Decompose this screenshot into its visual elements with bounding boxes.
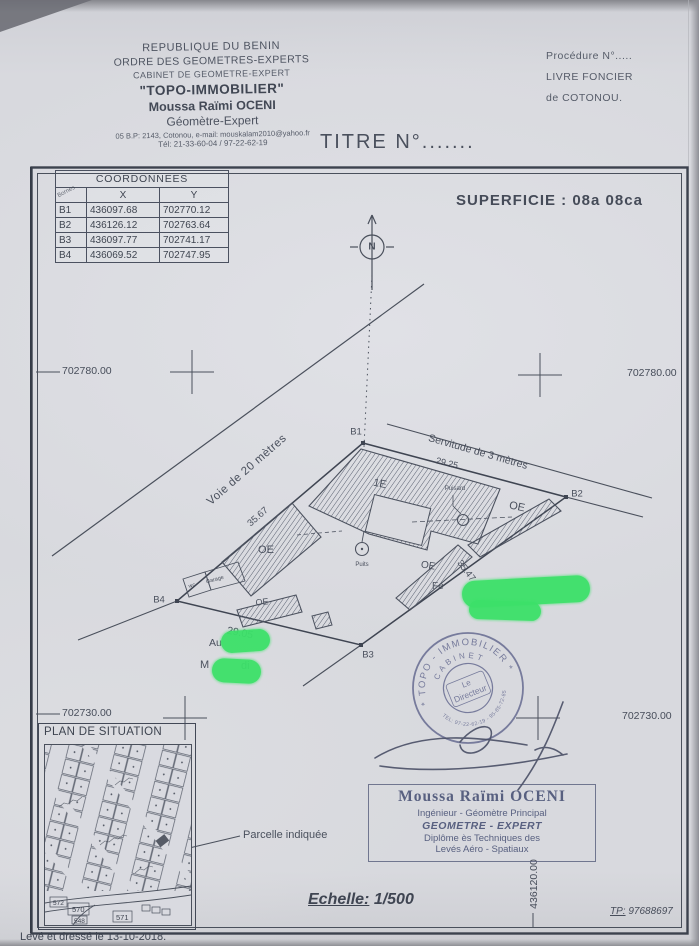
- north-arrow: [350, 215, 394, 290]
- letterhead: REPUBLIQUE DU BENIN ORDRE DES GEOMETRES-…: [61, 39, 363, 150]
- building-oe-small: [237, 595, 302, 627]
- boundary-extension-b3: [303, 645, 361, 686]
- situation-plan-title: PLAN DE SITUATION: [44, 726, 162, 738]
- situation-plan-map: 572 570 548 571: [44, 744, 192, 926]
- surveyor-title-2: GEOMETRE - EXPERT: [369, 820, 595, 832]
- block-number: 570: [72, 905, 85, 914]
- surveyor-diploma-1: Diplôme ès Techniques des: [369, 833, 595, 844]
- highlighter-redaction: [220, 628, 270, 653]
- road-edge-b4: [78, 601, 177, 640]
- scanned-survey-document: REPUBLIQUE DU BENIN ORDRE DES GEOMETRES-…: [0, 0, 699, 946]
- building-oe-mid: [396, 545, 472, 610]
- scan-corner-shadow: [0, 0, 92, 32]
- highlighter-redaction: [469, 600, 542, 622]
- boundary-extension-b2: [566, 497, 643, 517]
- building-oe-left: [222, 503, 321, 596]
- registry-city: de COTONOU.: [546, 92, 633, 104]
- gate-symbol: [312, 612, 332, 629]
- scale-label: Echelle:: [308, 891, 369, 908]
- scan-edge-top: [0, 0, 699, 12]
- round-stamp: * TOPO - IMMOBILIER * CABINET TEL: 97-22…: [396, 616, 539, 759]
- block-number: 572: [53, 900, 64, 907]
- block-number: 548: [74, 918, 85, 925]
- well-center-dot: [361, 548, 363, 550]
- document-title: TITRE N°.......: [320, 131, 475, 154]
- surveyor-diploma-2: Levés Aéro - Spatiaux: [369, 844, 595, 855]
- highlighter-redaction: [211, 658, 261, 685]
- registry-block: Procédure N°..... LIVRE FONCIER de COTON…: [546, 50, 633, 113]
- tp-number: TP: 97688697: [610, 906, 673, 917]
- scale-statement: Echelle: 1/500: [308, 891, 414, 909]
- procedure-number: Procédure N°.....: [546, 50, 633, 62]
- well-leader: [362, 531, 364, 542]
- surveyor-title-1: Ingénieur - Géomètre Principal: [369, 808, 595, 819]
- scale-value: 1/500: [374, 891, 414, 908]
- expert-title: Géomètre-Expert: [62, 112, 362, 129]
- surveyor-name: Moussa Raïmi OCENI: [369, 788, 595, 806]
- land-registry: LIVRE FONCIER: [546, 71, 633, 83]
- cabinet-name: "TOPO-IMMOBILIER": [62, 80, 362, 99]
- cabinet-line: CABINET DE GEOMETRE-EXPERT: [62, 67, 362, 81]
- indicated-parcel-label: Parcelle indiquée: [243, 829, 327, 841]
- meridian-dotted-line: [364, 275, 372, 447]
- tp-label: TP:: [610, 906, 626, 917]
- surveyor-stamp-box: Moussa Raïmi OCENI Ingénieur - Géomètre …: [368, 784, 596, 862]
- situation-map-drawing: 572 570 548 571: [45, 745, 191, 925]
- scan-edge-right: [690, 0, 699, 946]
- block-number: 571: [116, 913, 129, 922]
- survey-date-note: Levé et dressé le 13-10-2018.: [20, 931, 166, 943]
- tp-value: 97688697: [628, 906, 673, 917]
